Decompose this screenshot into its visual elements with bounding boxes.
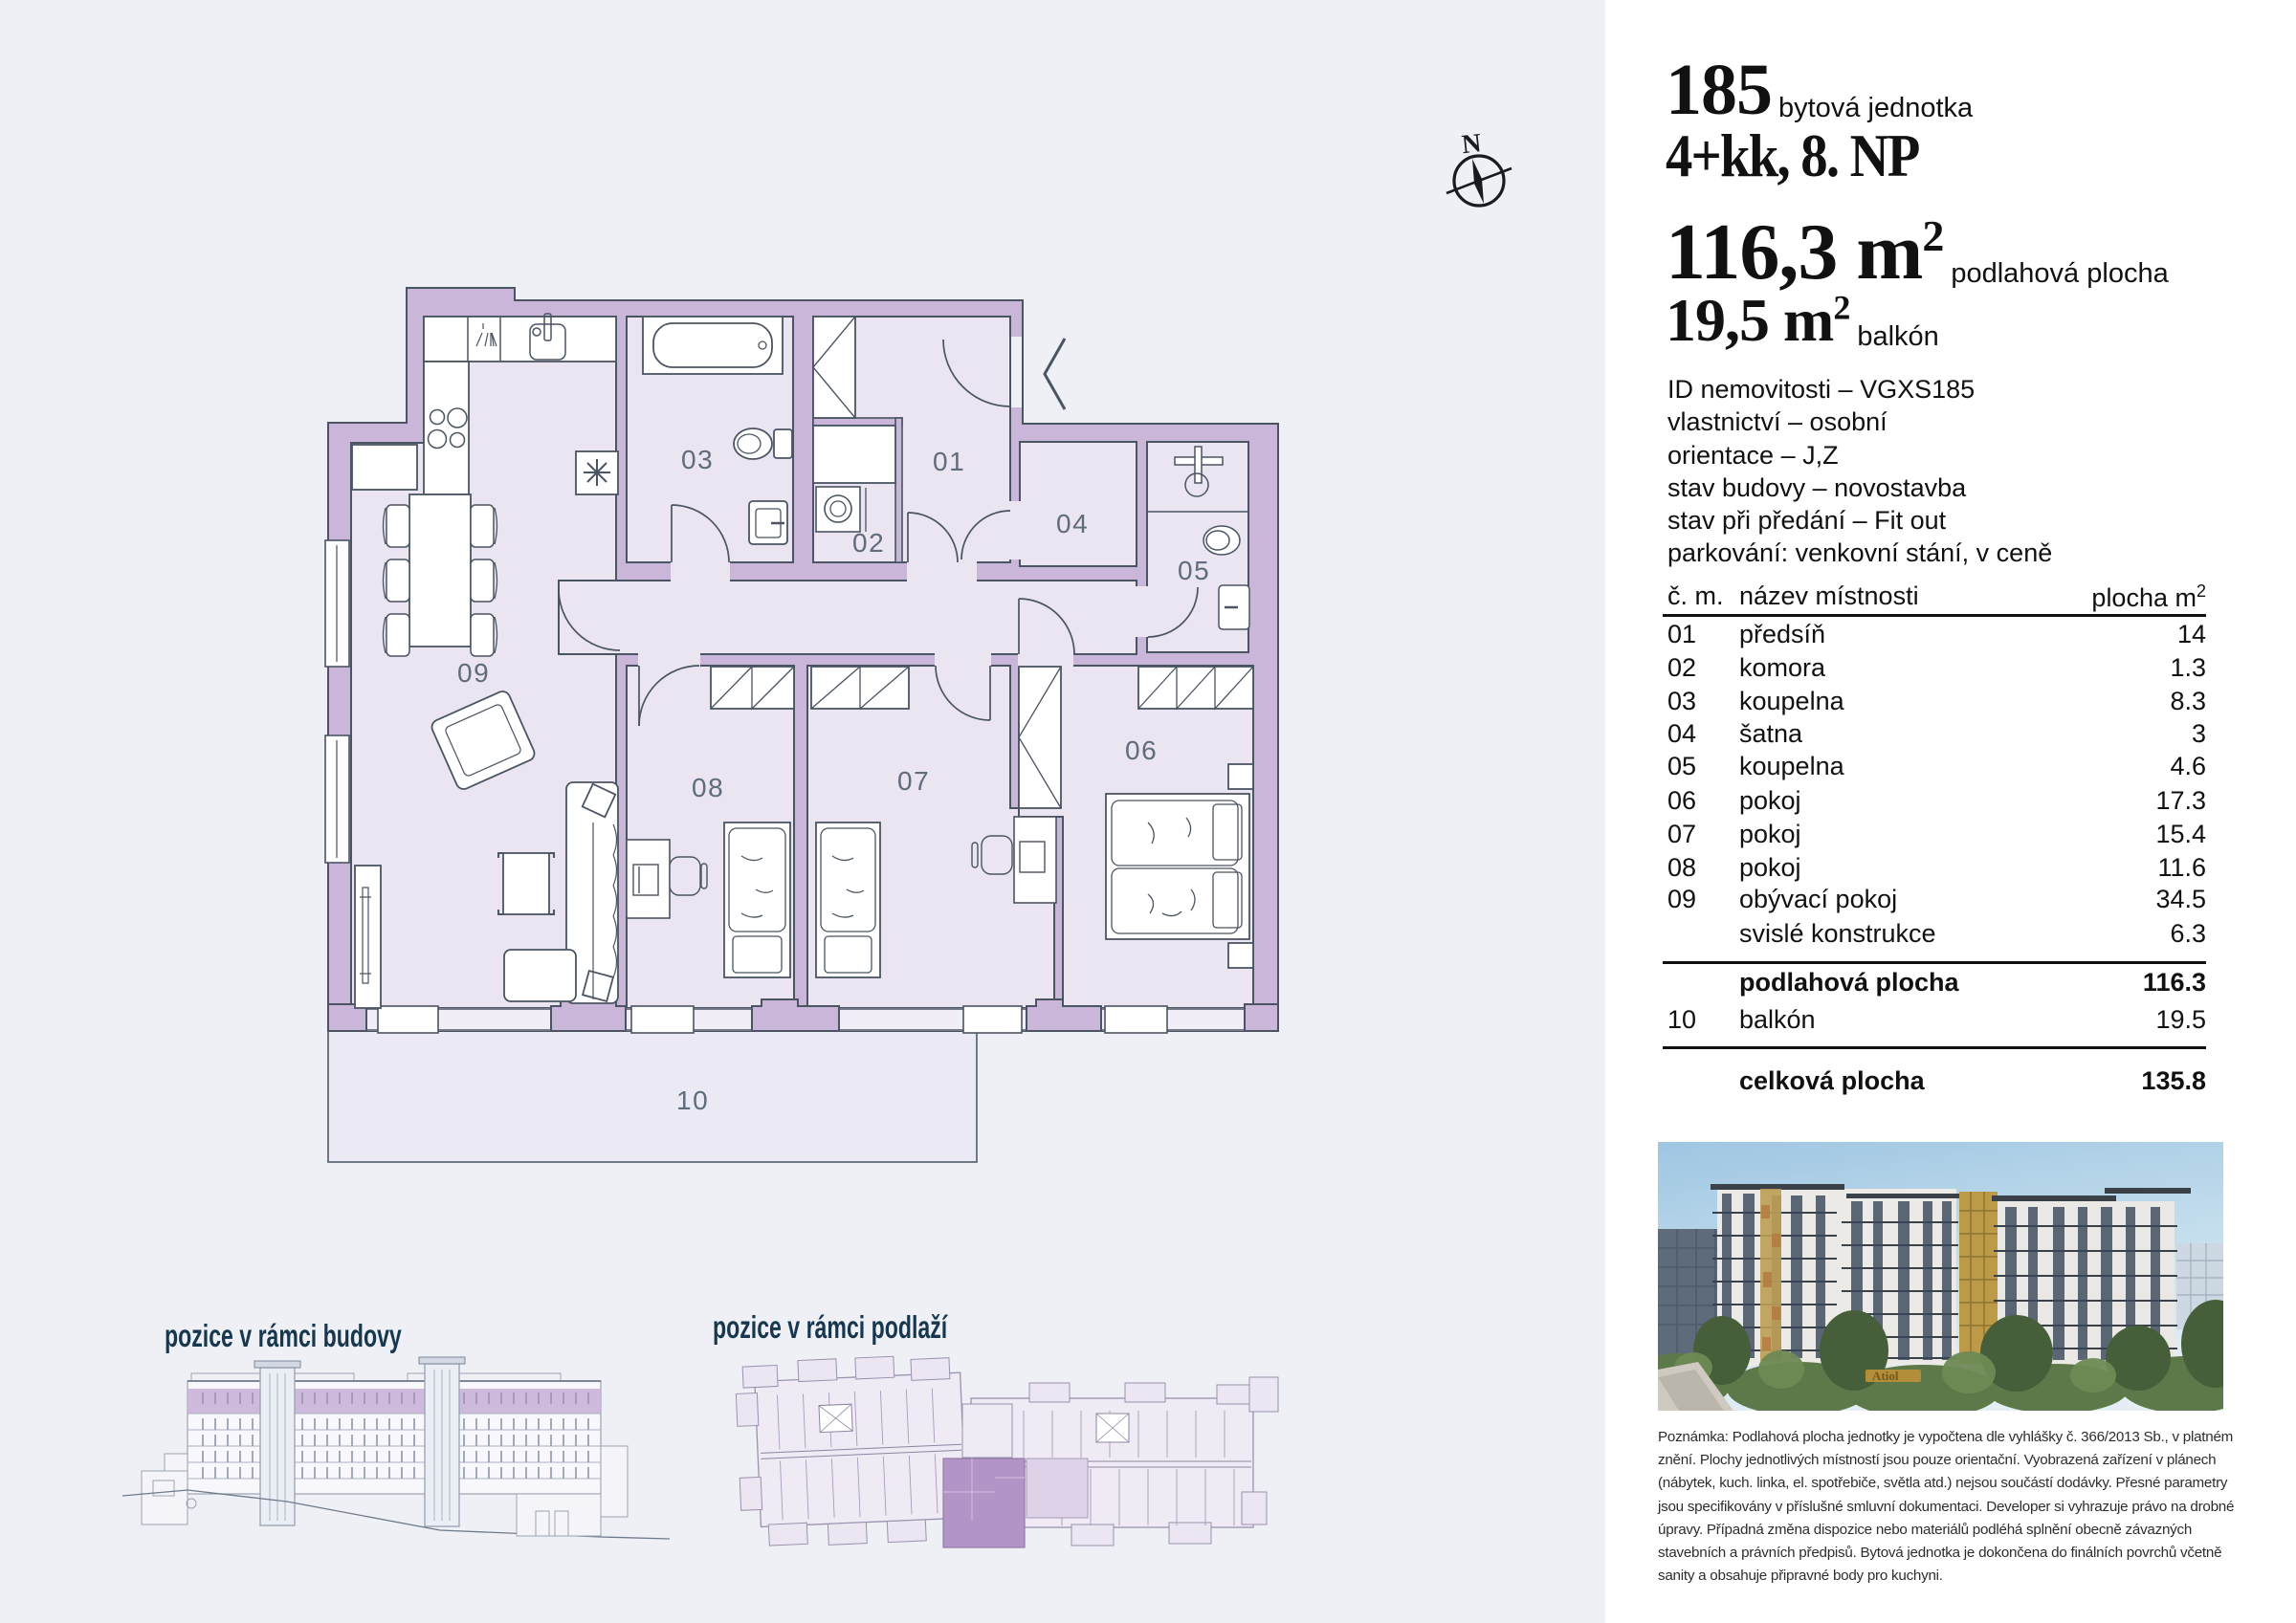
- svg-text:08: 08: [692, 773, 724, 802]
- svg-text:05: 05: [1178, 556, 1210, 585]
- svg-text:02: 02: [852, 528, 885, 558]
- svg-text:Atiol: Atiol: [1872, 1369, 1899, 1383]
- svg-text:01: 01: [933, 447, 965, 476]
- svg-text:03: 03: [681, 445, 714, 474]
- svg-text:09: 09: [457, 658, 490, 688]
- svg-text:06: 06: [1125, 735, 1158, 765]
- svg-text:N: N: [1460, 128, 1482, 160]
- svg-text:04: 04: [1056, 509, 1089, 538]
- svg-text:10: 10: [676, 1086, 709, 1115]
- svg-text:07: 07: [897, 766, 930, 796]
